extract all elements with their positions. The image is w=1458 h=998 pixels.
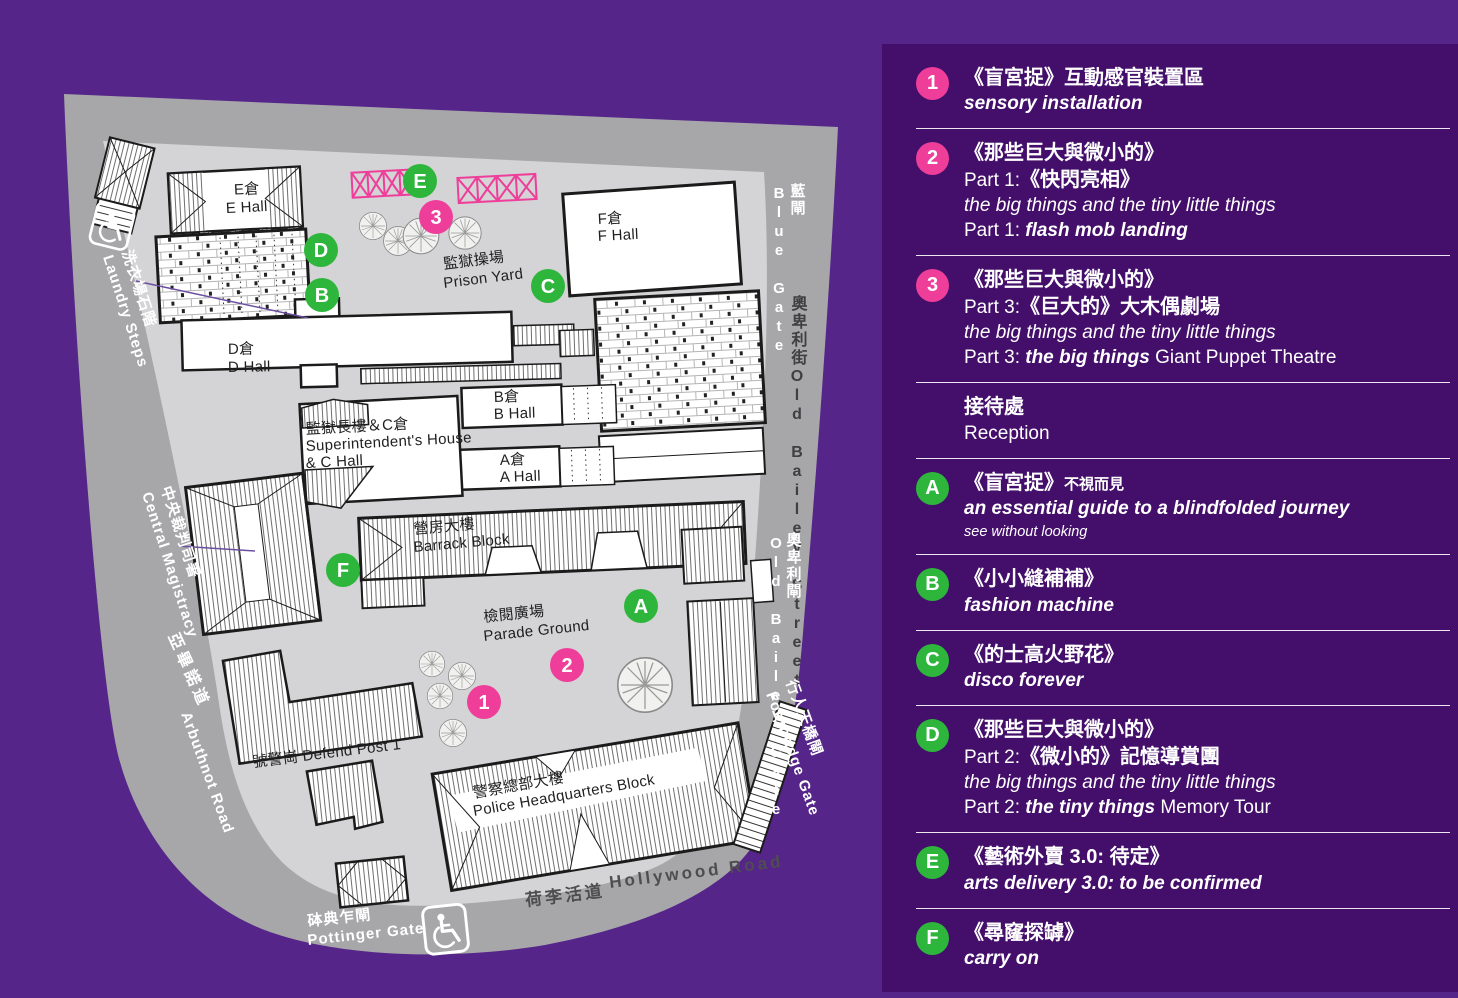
map-label: A倉: [500, 451, 526, 469]
f-hall: [563, 182, 742, 296]
marker-badge-d: D: [916, 719, 949, 752]
legend-marker-cell: [916, 394, 964, 396]
legend-marker-cell: A: [916, 470, 964, 505]
svg-text:D: D: [314, 240, 328, 262]
legend-line: 《的士高火野花》: [964, 642, 1450, 668]
legend-panel: 1《盲宮捉》互動感官裝置區sensory installation2《那些巨大與…: [882, 44, 1458, 992]
laundry-block: [156, 229, 310, 323]
svg-text:E: E: [413, 171, 426, 193]
legend-list: 1《盲宮捉》互動感官裝置區sensory installation2《那些巨大與…: [916, 54, 1450, 983]
long-thin-block: [599, 428, 765, 483]
legend-item-text: 《藝術外賣 3.0: 待定》arts delivery 3.0: to be c…: [964, 844, 1450, 895]
legend-line: the big things and the tiny little thing…: [964, 770, 1450, 795]
legend-item-text: 《小小縫補補》fashion machine: [964, 566, 1450, 617]
legend-line: Part 3: the big things Giant Puppet Thea…: [964, 345, 1450, 370]
map-marker-e: E: [403, 164, 437, 198]
marker-badge-a: A: [916, 472, 949, 505]
map-label: D倉: [228, 341, 255, 358]
map-label: F倉: [597, 210, 623, 228]
map-label: E Hall: [225, 198, 268, 217]
legend-item: B《小小縫補補》fashion machine: [916, 554, 1450, 629]
legend-line: 《那些巨大與微小的》: [964, 717, 1450, 743]
map-label: Old Bailey Gate: [768, 535, 785, 820]
legend-item-text: 《那些巨大與微小的》Part 2:《微小的》記憶導賞團the big thing…: [964, 717, 1450, 820]
legend-line: Part 2: the tiny things Memory Tour: [964, 795, 1450, 820]
legend-line: Part 1: flash mob landing: [964, 218, 1450, 243]
map-label: 奧卑利閘: [785, 531, 802, 600]
legend-item-text: 《那些巨大與微小的》Part 3:《巨大的》大木偶劇場the big thing…: [964, 267, 1450, 370]
legend-line: arts delivery 3.0: to be confirmed: [964, 871, 1450, 896]
map-marker-3: 3: [419, 200, 453, 234]
legend-item-text: 接待處Reception: [964, 394, 1450, 445]
map-marker-2: 2: [550, 648, 584, 682]
legend-line: Part 2:《微小的》記憶導賞團: [964, 744, 1450, 770]
legend-item: 1《盲宮捉》互動感官裝置區sensory installation: [916, 54, 1450, 128]
legend-item: 3《那些巨大與微小的》Part 3:《巨大的》大木偶劇場the big thin…: [916, 255, 1450, 382]
legend-line: 《藝術外賣 3.0: 待定》: [964, 844, 1450, 870]
map-marker-1: 1: [467, 685, 501, 719]
legend-item-text: 《盲宮捉》互動感官裝置區sensory installation: [964, 65, 1450, 116]
central-magistracy: [186, 473, 321, 634]
legend-line: see without looking: [964, 521, 1450, 542]
legend-line: fashion machine: [964, 593, 1450, 618]
map-marker-d: D: [304, 233, 338, 267]
svg-text:F: F: [337, 560, 349, 582]
map-label: F Hall: [597, 226, 639, 245]
map-label: 藍閘: [789, 182, 806, 217]
map-label: D Hall: [228, 358, 271, 376]
legend-line: 《那些巨大與微小的》: [964, 140, 1450, 166]
legend-line: 接待處: [964, 394, 1450, 420]
legend-line: Part 3:《巨大的》大木偶劇場: [964, 294, 1450, 320]
legend-marker-cell: E: [916, 844, 964, 879]
svg-text:B: B: [315, 285, 329, 307]
legend-item: 接待處Reception: [916, 382, 1450, 457]
marker-badge-3: 3: [916, 269, 949, 302]
legend-line: the big things and the tiny little thing…: [964, 320, 1450, 345]
legend-marker-cell: 2: [916, 140, 964, 175]
svg-text:1: 1: [478, 692, 489, 714]
legend-line: an essential guide to a blindfolded jour…: [964, 496, 1450, 521]
legend-marker-cell: 3: [916, 267, 964, 302]
map-marker-c: C: [531, 269, 565, 303]
map-label: E倉: [234, 180, 260, 198]
legend-item-text: 《尋窿探罅》carry on: [964, 920, 1450, 971]
legend-marker-cell: B: [916, 566, 964, 601]
map-label: Blue Gate: [771, 185, 788, 356]
map-label: B Hall: [494, 405, 536, 423]
legend-line: Part 1:《快閃亮相》: [964, 167, 1450, 193]
legend-line: 《盲宮捉》互動感官裝置區: [964, 65, 1450, 91]
legend-marker-cell: 1: [916, 65, 964, 100]
legend-line: 《那些巨大與微小的》: [964, 267, 1450, 293]
legend-item-text: 《那些巨大與微小的》Part 1:《快閃亮相》the big things an…: [964, 140, 1450, 243]
legend-marker-cell: F: [916, 920, 964, 955]
marker-badge-e: E: [916, 846, 949, 879]
legend-line: Reception: [964, 421, 1450, 446]
legend-line: the big things and the tiny little thing…: [964, 193, 1450, 218]
gate-house: [336, 857, 408, 908]
legend-item: E《藝術外賣 3.0: 待定》arts delivery 3.0: to be …: [916, 832, 1450, 907]
map-label: B倉: [494, 388, 520, 406]
event-map-poster: E倉E HallF倉F HallD倉D HallB倉B Hall監獄長樓＆C倉S…: [0, 0, 1458, 998]
legend-item: F《尋窿探罅》carry on: [916, 908, 1450, 983]
map-marker-a: A: [624, 589, 658, 623]
map-marker-f: F: [326, 553, 360, 587]
marker-badge-c: C: [916, 644, 949, 677]
svg-text:A: A: [634, 596, 648, 618]
site-map: E倉E HallF倉F HallD倉D HallB倉B Hall監獄長樓＆C倉S…: [0, 0, 882, 998]
svg-text:2: 2: [561, 655, 572, 677]
legend-line: disco forever: [964, 668, 1450, 693]
marker-badge-f: F: [916, 922, 949, 955]
marker-badge-2: 2: [916, 142, 949, 175]
legend-item-text: 《的士高火野花》disco forever: [964, 642, 1450, 693]
brick-block: [595, 291, 766, 431]
svg-text:C: C: [541, 276, 555, 298]
legend-item: C《的士高火野花》disco forever: [916, 630, 1450, 705]
legend-line: 《尋窿探罅》: [964, 920, 1450, 946]
map-label: & C Hall: [305, 452, 363, 472]
legend-marker-cell: D: [916, 717, 964, 752]
legend-line: sensory installation: [964, 91, 1450, 116]
map-label: A Hall: [500, 468, 542, 486]
legend-line: 《盲宮捉》不視而見: [964, 470, 1450, 496]
legend-marker-cell: C: [916, 642, 964, 677]
legend-item: D《那些巨大與微小的》Part 2:《微小的》記憶導賞團the big thin…: [916, 705, 1450, 832]
legend-item-text: 《盲宮捉》不視而見an essential guide to a blindfo…: [964, 470, 1450, 543]
map-label: Old Bailey Street: [789, 368, 806, 691]
legend-item: 2《那些巨大與微小的》Part 1:《快閃亮相》the big things a…: [916, 128, 1450, 255]
marker-badge-1: 1: [916, 67, 949, 100]
svg-text:3: 3: [430, 207, 441, 229]
map-marker-b: B: [305, 278, 339, 312]
legend-line: carry on: [964, 946, 1450, 971]
legend-line: 《小小縫補補》: [964, 566, 1450, 592]
legend-item: A《盲宮捉》不視而見an essential guide to a blindf…: [916, 458, 1450, 555]
marker-badge-b: B: [916, 568, 949, 601]
